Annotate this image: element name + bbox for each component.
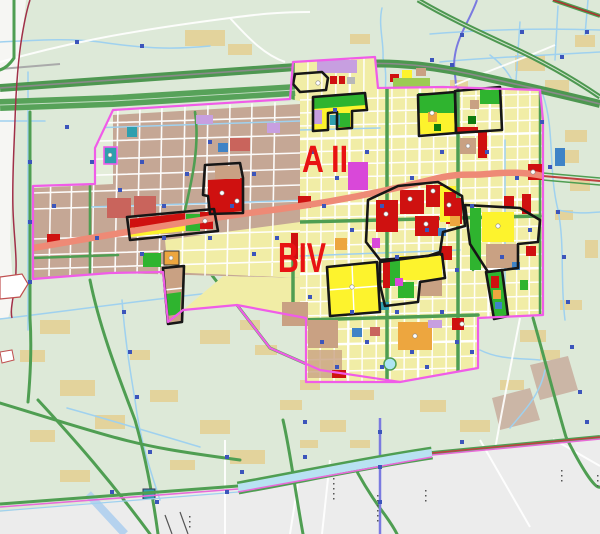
parcel-blue [352,328,362,337]
parcel-teal [330,115,340,125]
parcel-green-dark [434,124,441,131]
parcel-red-strip [383,262,390,288]
parcel-lavender [267,123,280,133]
parcel-red [491,276,499,288]
parcel-green-dark [468,116,476,124]
parcel-yellow [402,70,412,78]
parcel-lavender [196,115,213,124]
zoning-map-svg: A II BIV [0,0,600,534]
parcel-rose [370,327,380,336]
parcel-orange [335,238,347,250]
parcel-blue [495,302,502,309]
parcel-lavender [314,110,322,124]
parcel-green [520,280,528,290]
parcel-gray [347,77,355,84]
parcel-teal [127,127,137,137]
parcel-green [143,253,161,267]
parcel-green [418,93,455,113]
parcel-red [526,246,536,256]
parcel-green [480,90,500,104]
parcel-magenta-large [348,162,368,190]
parcel-tan [470,100,479,109]
parcel-rose [134,196,156,216]
parcel-tan [215,166,240,179]
parcel-red [400,190,424,214]
parcel-blue-outside [555,148,565,166]
parcel-rose [107,198,131,218]
pond [384,358,396,370]
parcel-red [339,76,345,84]
district-label-b: BIV [278,234,326,281]
district-label-a: A II [302,139,348,181]
parcel-magenta [372,238,380,248]
parcel-orange [493,290,501,299]
parcel-blue [218,143,228,152]
parcel-magenta [395,278,403,286]
parcel-rose [230,138,250,151]
parcel-orange [450,216,460,226]
parcel-red [330,76,337,84]
parcel-lavender [428,320,442,328]
map-canvas: A II BIV [0,0,600,534]
parcel-tan [416,68,426,76]
parcel-lavender [317,60,357,73]
